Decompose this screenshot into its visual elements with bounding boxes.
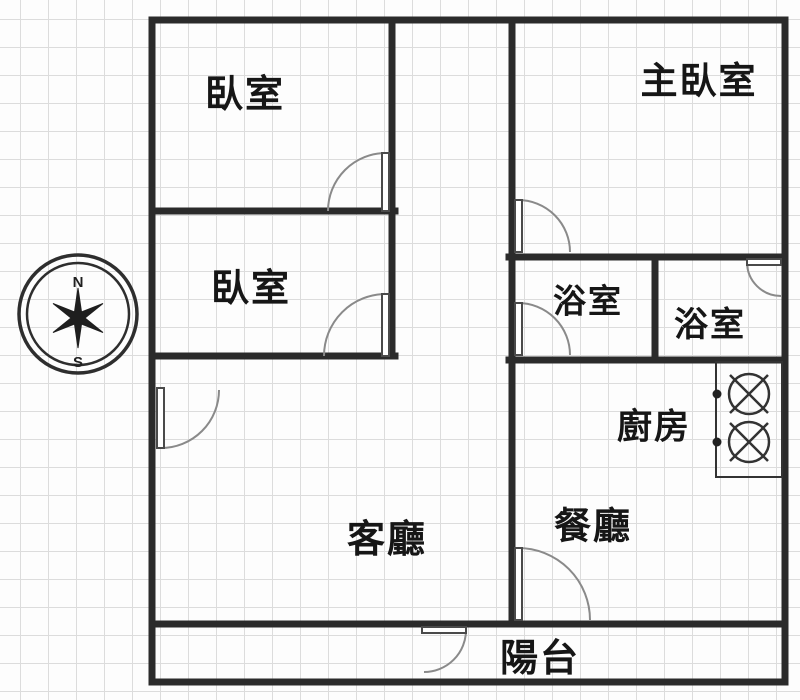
room-label-master-bedroom: 主臥室 — [641, 63, 758, 100]
door-bathroom-right — [747, 259, 781, 296]
compass-north-label: N — [73, 274, 84, 291]
compass-star — [53, 288, 103, 348]
room-label-living-room: 客廳 — [347, 521, 427, 559]
room-label-balcony: 陽台 — [500, 640, 580, 678]
door-leaf — [382, 294, 389, 356]
floor-plan-drawing: N S — [0, 0, 800, 700]
door-bedroom-top-left — [328, 153, 389, 211]
room-label-bedroom-top-left: 臥室 — [205, 76, 285, 114]
door-swing-icon — [328, 153, 386, 211]
door-swing-icon — [518, 200, 570, 252]
stove-two-burner-icon — [713, 362, 783, 477]
door-swing-icon — [424, 630, 466, 672]
stove-knob — [713, 438, 722, 447]
compass-rose-icon: N S — [19, 255, 137, 373]
burner-cross-icon — [730, 423, 768, 461]
door-balcony — [422, 627, 466, 672]
door-bedroom-mid-left — [324, 294, 389, 356]
room-label-kitchen: 廚房 — [617, 410, 691, 445]
door-leaf — [157, 388, 164, 448]
stove-knob — [713, 390, 722, 399]
door-swing-icon — [747, 262, 781, 296]
door-dining-room — [515, 548, 590, 620]
door-leaf — [382, 153, 389, 211]
room-label-bedroom-mid-left: 臥室 — [211, 270, 291, 308]
door-entrance — [157, 388, 219, 448]
compass-south-label: S — [73, 354, 83, 371]
door-leaf — [422, 627, 466, 633]
room-label-bathroom-right: 浴室 — [674, 308, 746, 342]
burner-cross-icon — [730, 375, 768, 413]
door-swing-icon — [518, 548, 590, 620]
door-leaf — [747, 259, 781, 265]
room-label-bathroom-left: 浴室 — [553, 285, 623, 318]
door-swing-icon — [324, 294, 386, 356]
door-leaf — [515, 548, 522, 620]
stove-counter — [716, 362, 782, 477]
door-leaf — [515, 303, 522, 355]
door-master-bedroom — [515, 200, 570, 252]
door-leaf — [515, 200, 522, 252]
outer-wall — [152, 20, 785, 682]
walls — [152, 20, 785, 682]
floor-plan: N S 臥室 主臥室 臥室 浴室 浴室 廚房 客廳 餐廳 陽台 — [0, 0, 800, 700]
room-label-dining-room: 餐廳 — [554, 508, 632, 545]
door-swing-icon — [161, 390, 219, 448]
